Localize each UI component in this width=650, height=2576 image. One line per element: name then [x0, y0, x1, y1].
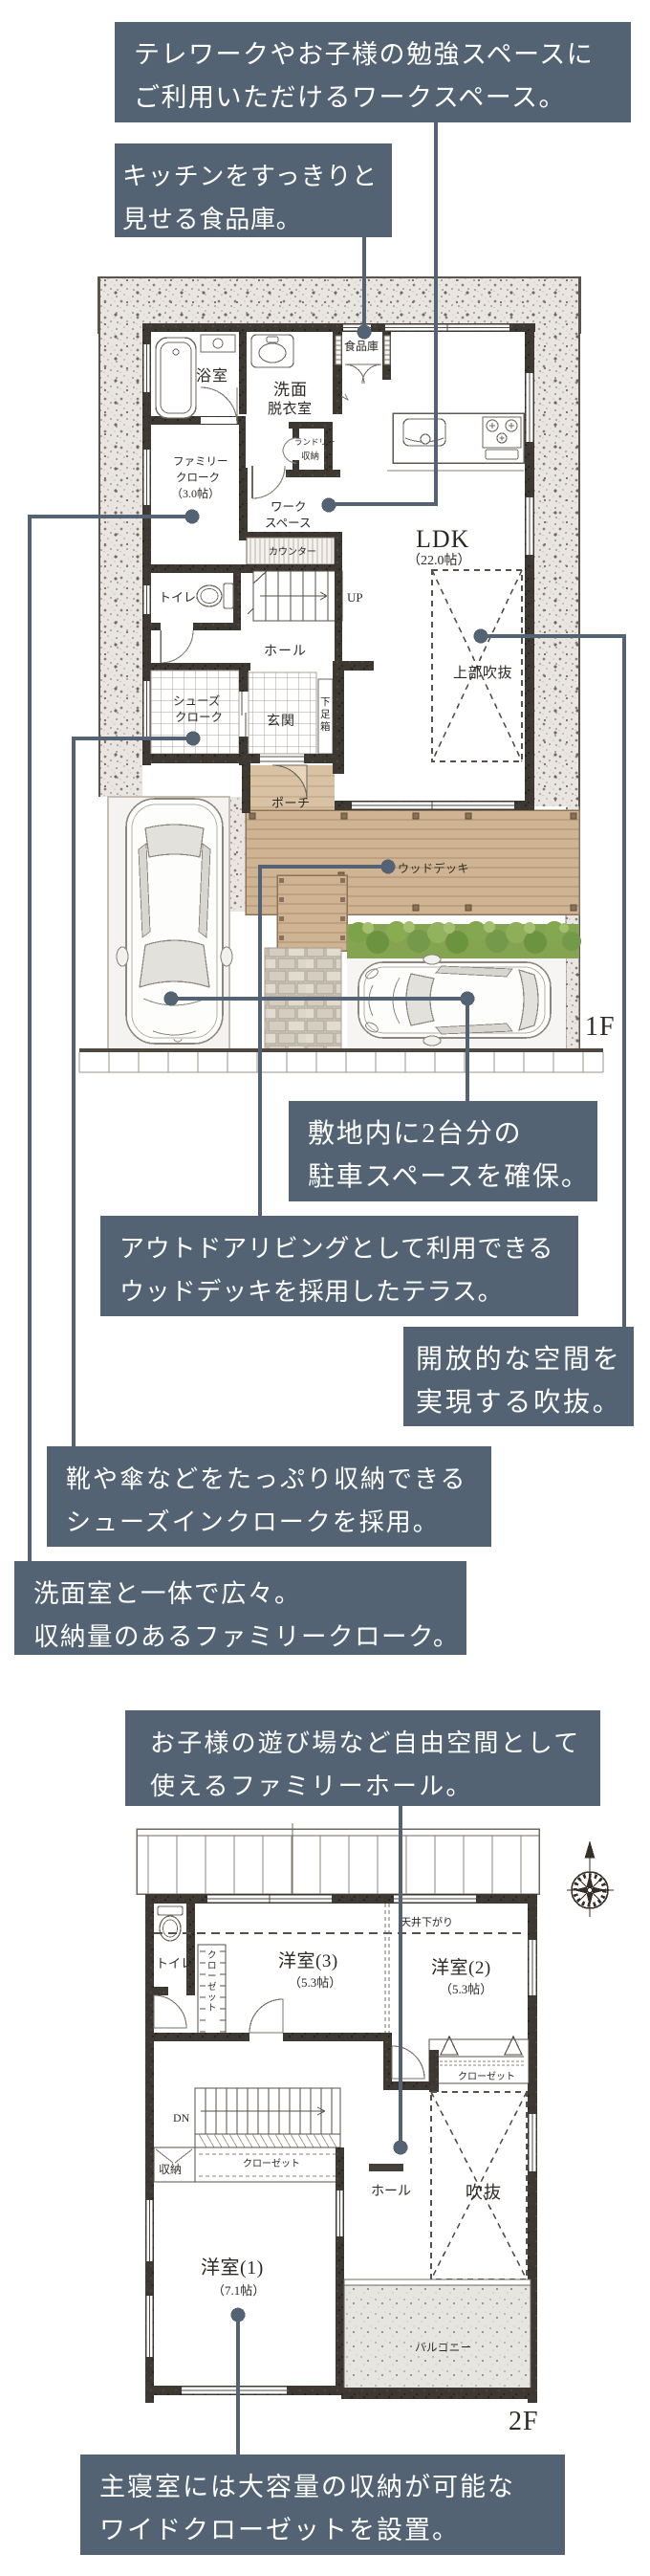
svg-text:ー: ー — [207, 1972, 217, 1982]
svg-text:クローゼット: クローゼット — [243, 2158, 300, 2169]
svg-text:箱: 箱 — [320, 720, 331, 733]
svg-text:LDK: LDK — [416, 525, 469, 553]
svg-text:DN: DN — [173, 2111, 190, 2125]
svg-text:カウンター: カウンター — [269, 546, 316, 558]
svg-text:ファミリー: ファミリー — [173, 456, 228, 468]
svg-text:バルコニー: バルコニー — [415, 2342, 472, 2354]
svg-text:トイレ: トイレ — [159, 590, 196, 605]
svg-text:洗面: 洗面 — [273, 381, 308, 399]
svg-text:ッ: ッ — [207, 1993, 217, 2003]
svg-text:ホール: ホール — [264, 645, 307, 659]
svg-text:脱衣室: 脱衣室 — [268, 401, 313, 417]
svg-text:洋室(3): 洋室(3) — [278, 1950, 338, 1971]
svg-text:吹抜: 吹抜 — [466, 2183, 502, 2202]
svg-text:足: 足 — [320, 709, 331, 720]
svg-text:ウッドデッキ: ウッドデッキ — [398, 861, 469, 875]
svg-text:洋室(1): 洋室(1) — [201, 2257, 264, 2279]
svg-text:（3.0帖）: （3.0帖） — [171, 486, 220, 500]
svg-text:浴室: 浴室 — [196, 367, 228, 385]
svg-text:ランドリー: ランドリー — [294, 437, 336, 447]
svg-text:（22.0帖）: （22.0帖） — [407, 553, 471, 568]
svg-text:クローク: クローク — [175, 711, 223, 724]
svg-text:スペース: スペース — [265, 517, 312, 530]
svg-text:収納: 収納 — [301, 451, 319, 462]
svg-text:玄関: 玄関 — [267, 713, 295, 729]
svg-text:ポーチ: ポーチ — [271, 796, 311, 810]
svg-text:（5.3帖）: （5.3帖） — [440, 1982, 492, 1996]
svg-text:ク: ク — [207, 1950, 217, 1961]
svg-text:クローク: クローク — [176, 472, 220, 484]
svg-text:下: 下 — [320, 697, 331, 708]
svg-text:洋室(2): 洋室(2) — [431, 1957, 491, 1978]
svg-text:ゼ: ゼ — [207, 1981, 217, 1993]
svg-text:収納: 収納 — [159, 2163, 182, 2176]
svg-text:上部吹抜: 上部吹抜 — [453, 665, 512, 681]
svg-text:UP: UP — [347, 590, 363, 605]
svg-text:食品庫: 食品庫 — [344, 339, 379, 353]
svg-text:天井下がり: 天井下がり — [401, 1915, 453, 1928]
svg-text:トイレ: トイレ — [156, 1956, 193, 1971]
svg-text:ホール: ホール — [371, 2185, 411, 2199]
svg-text:シューズ: シューズ — [173, 694, 220, 708]
svg-text:（7.1帖）: （7.1帖） — [212, 2283, 265, 2298]
svg-text:ト: ト — [207, 2004, 217, 2014]
svg-text:ロ: ロ — [207, 1962, 217, 1971]
svg-text:（5.3帖）: （5.3帖） — [289, 1975, 341, 1990]
svg-text:ワーク: ワーク — [271, 500, 307, 514]
svg-text:クローゼット: クローゼット — [458, 2071, 515, 2082]
